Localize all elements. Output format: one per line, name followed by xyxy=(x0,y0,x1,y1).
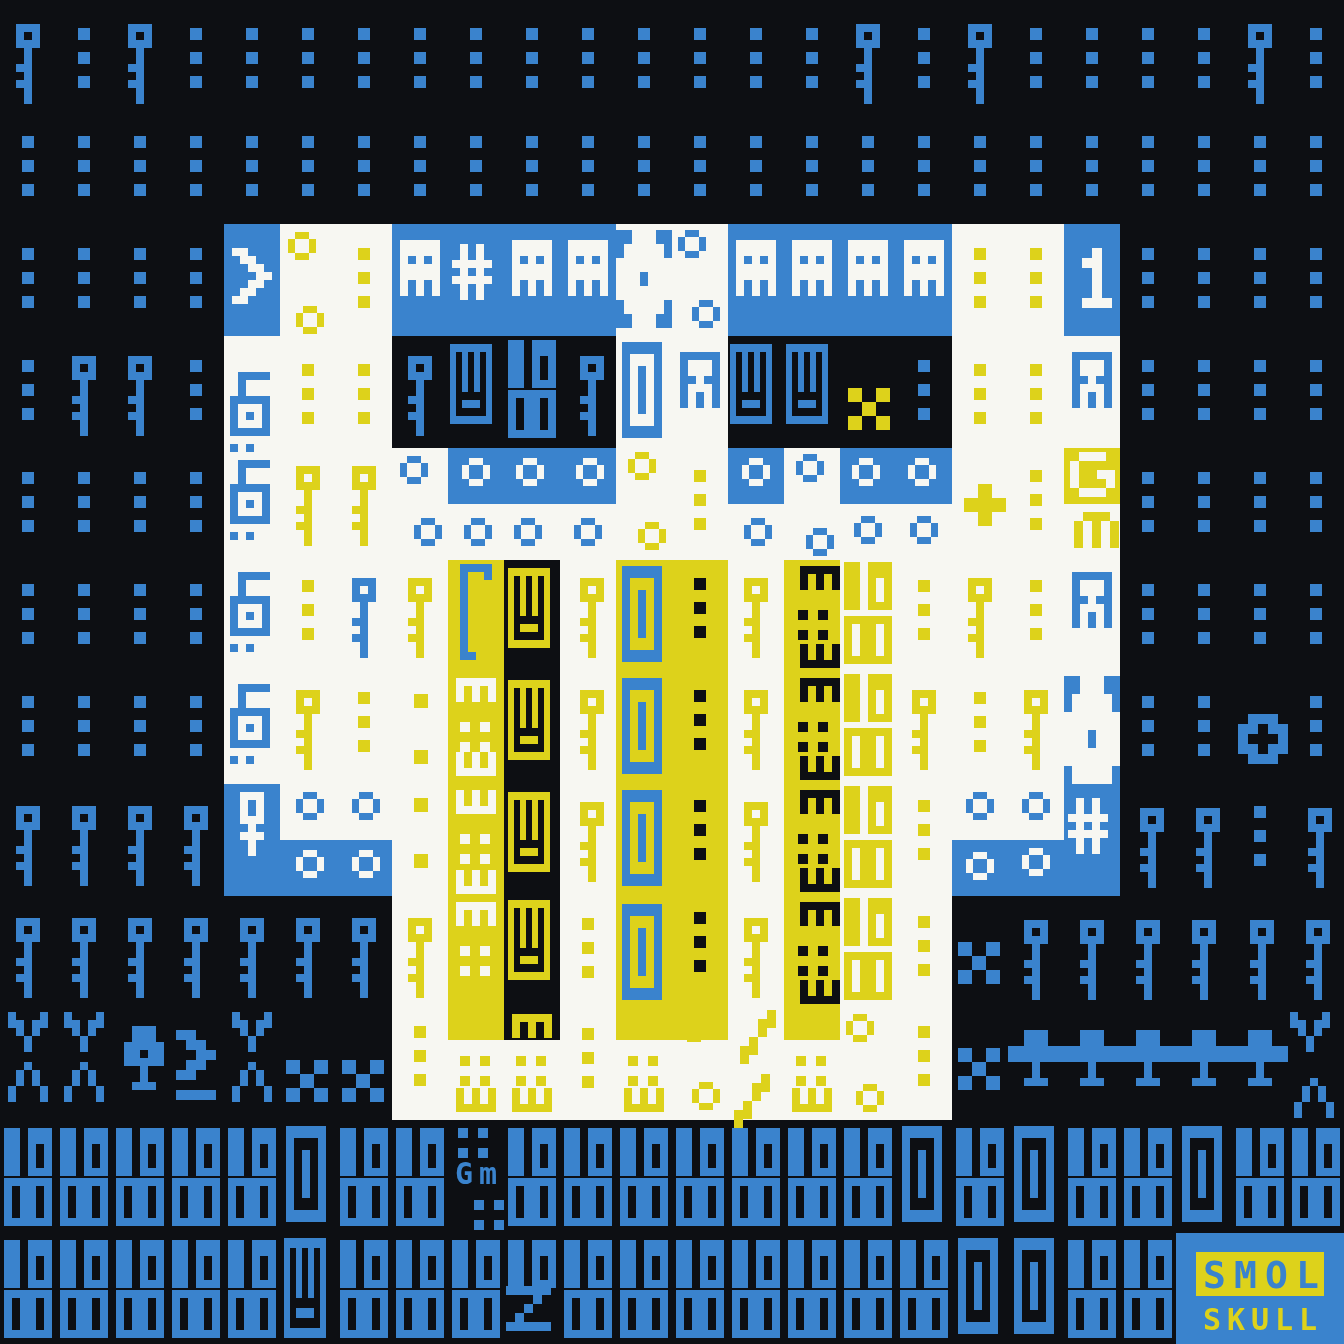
smol-skull-logo: SMOL SKULL xyxy=(1176,1233,1344,1344)
gm-badge: G xyxy=(1064,448,1120,560)
logo-line-1: SMOL xyxy=(1176,1233,1177,1234)
level-indicator: 1 xyxy=(1064,224,1120,336)
game-screen: 1 G Gm SMOL SKULL xyxy=(0,0,1344,1344)
player-cursor[interactable] xyxy=(224,224,280,336)
gm-badge-label: G xyxy=(1064,448,1065,449)
level-indicator-label: 1 xyxy=(1064,224,1065,225)
gm-bookshelf-marker: Gm xyxy=(448,1120,504,1232)
gm-marker-label: Gm xyxy=(448,1120,449,1121)
logo-line-2: SKULL xyxy=(1176,1233,1177,1234)
game-canvas[interactable] xyxy=(0,0,1344,1344)
